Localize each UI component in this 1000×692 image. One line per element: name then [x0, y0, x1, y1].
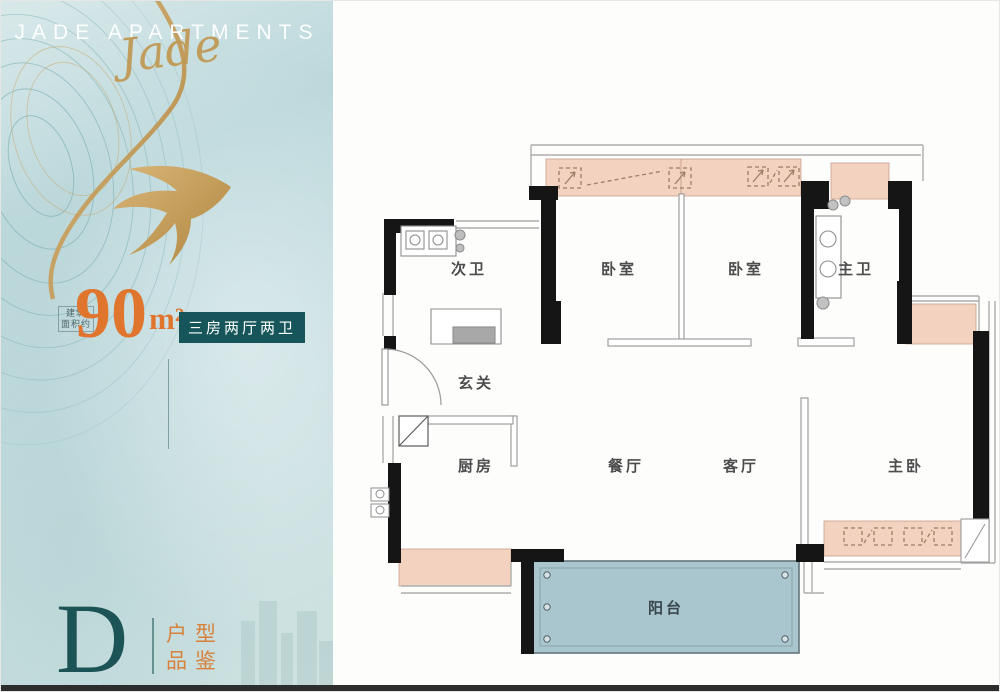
decor-graphics	[1, 1, 333, 692]
room-label-bath2: 次卫	[451, 260, 487, 278]
floorplan-panel: 次卫 卧室 卧室 主卫 玄关 厨房 餐厅 客厅 主卧 阳台	[333, 1, 1000, 692]
ac-unit-icon	[559, 167, 952, 545]
poster-canvas: JADE APARTMENTS Jade 建筑 面积约 90 m² 三房两厅两卫…	[0, 0, 1000, 692]
meter-boxes-icon	[371, 488, 389, 517]
bottom-bar	[1, 685, 999, 691]
unit-type-letter: D	[56, 589, 128, 689]
room-label-kitchen: 厨房	[458, 457, 494, 475]
unit-card-label-line2: 品鉴	[166, 648, 224, 675]
room-label-dining: 餐厅	[608, 457, 644, 475]
entry-door-arc-icon	[382, 349, 441, 405]
side-door-icon	[961, 519, 989, 562]
room-label-bedroom2: 卧室	[728, 260, 764, 278]
ac-platform-areas	[399, 159, 976, 586]
room-label-bedroom1: 卧室	[601, 260, 637, 278]
bath1-fixtures-icon	[816, 196, 850, 309]
room-label-bath1: 主卫	[838, 260, 874, 278]
vertical-divider	[168, 359, 169, 449]
room-label-master: 主卧	[888, 457, 924, 475]
skyline-watermark-icon	[241, 601, 333, 692]
unit-card-label: 户型 品鉴	[166, 621, 224, 675]
bath2-fixtures-icon	[401, 226, 501, 344]
layout-badge: 三房两厅两卫	[179, 312, 305, 343]
room-label-foyer: 玄关	[458, 374, 494, 392]
area-value: 90	[75, 277, 147, 349]
promo-panel: JADE APARTMENTS Jade 建筑 面积约 90 m² 三房两厅两卫…	[1, 1, 333, 692]
floorplan-drawing: 次卫 卧室 卧室 主卫 玄关 厨房 餐厅 客厅 主卧 阳台	[361, 131, 1000, 676]
kitchen-sink-icon	[399, 416, 428, 446]
swallow-bird-icon	[113, 166, 231, 265]
unit-card-divider	[152, 618, 154, 674]
room-label-balcony: 阳台	[648, 599, 684, 617]
room-label-living: 客厅	[722, 457, 759, 475]
unit-card-label-line1: 户型	[166, 621, 224, 648]
